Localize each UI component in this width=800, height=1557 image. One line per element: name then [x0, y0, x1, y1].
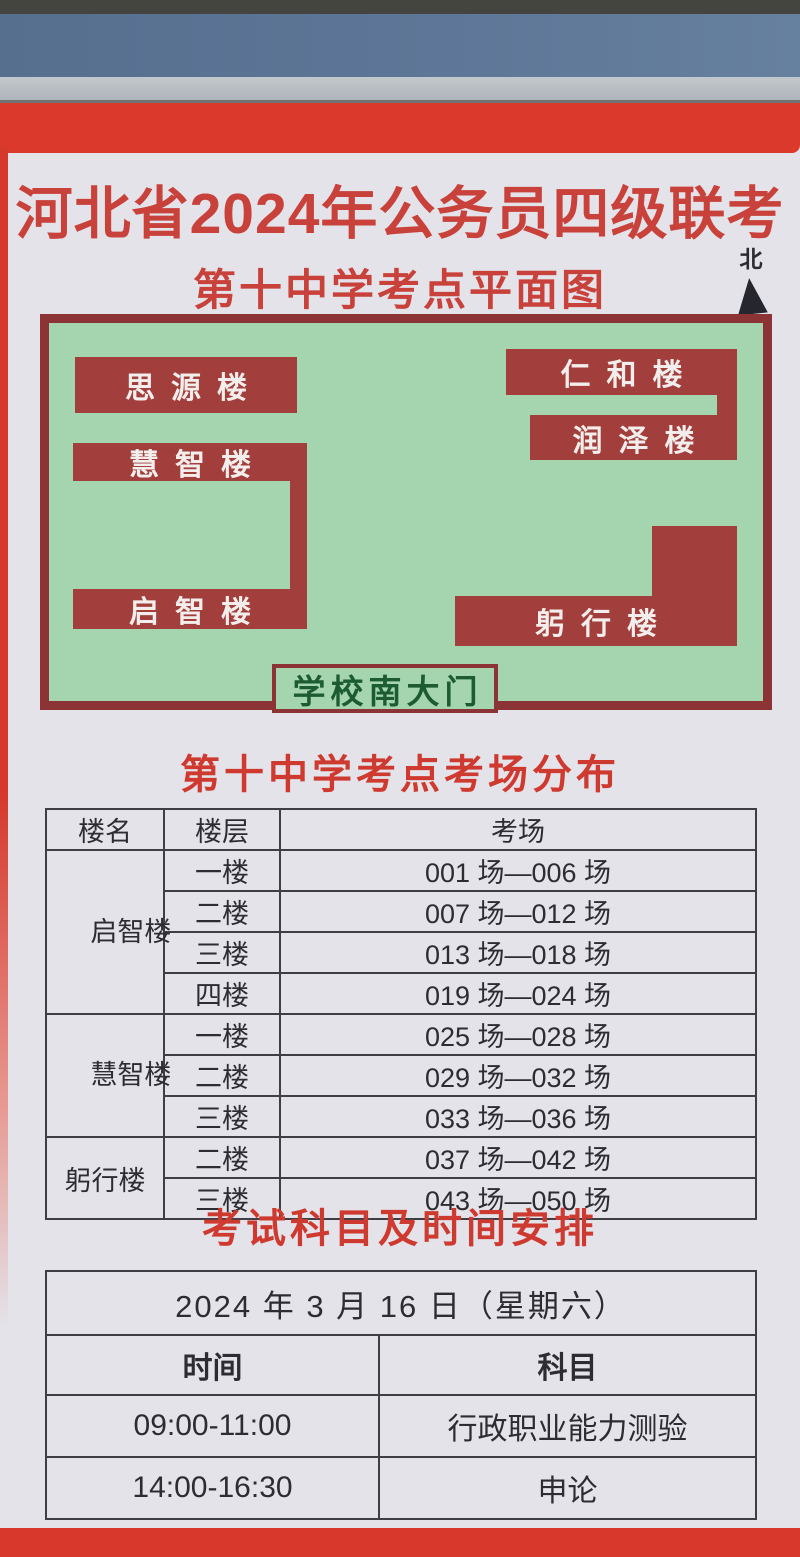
building-label: 思源楼 — [109, 363, 263, 407]
time-cell: 09:00-11:00 — [46, 1395, 379, 1457]
building-qizhi: 启智楼 — [73, 589, 307, 629]
table-row: 启智楼 一楼 001 场—006 场 — [46, 850, 756, 891]
schedule-row: 14:00-16:30 申论 — [46, 1457, 756, 1519]
table-header-row: 楼名 楼层 考场 — [46, 809, 756, 850]
north-indicator: 北 — [728, 240, 774, 314]
building-label: 躬行楼 — [519, 599, 673, 643]
room-distribution-title: 第十中学考点考场分布 — [0, 742, 800, 800]
schedule-table: 2024 年 3 月 16 日（星期六） 时间 科目 09:00-11:00 行… — [45, 1270, 757, 1520]
building-renhe-runze-connector — [717, 393, 737, 417]
time-cell: 14:00-16:30 — [46, 1457, 379, 1519]
building-qizhi-wing — [290, 479, 307, 591]
rooms-cell: 019 场—024 场 — [280, 973, 756, 1014]
building-gongxing-wing — [652, 526, 737, 598]
subject-cell: 申论 — [379, 1457, 756, 1519]
poster-photo: { "poster": { "title": "河北省2024年公务员四级联考"… — [0, 0, 800, 1557]
building-name: 躬行楼 — [65, 1166, 146, 1196]
col-header-rooms: 考场 — [280, 809, 756, 850]
window-frame-top-bar — [0, 0, 800, 14]
rooms-cell: 013 场—018 场 — [280, 932, 756, 973]
building-name: 启智楼 — [90, 909, 119, 955]
north-arrow-icon — [734, 277, 768, 316]
schedule-row: 09:00-11:00 行政职业能力测验 — [46, 1395, 756, 1457]
north-label: 北 — [728, 240, 774, 274]
building-huizhi: 慧智楼 — [73, 443, 307, 481]
rooms-cell: 007 场—012 场 — [280, 891, 756, 932]
floor-cell: 二楼 — [164, 1137, 280, 1178]
rooms-cell: 025 场—028 场 — [280, 1014, 756, 1055]
page-title: 河北省2024年公务员四级联考 — [0, 168, 800, 250]
building-label: 启智楼 — [113, 587, 267, 631]
building-label: 润泽楼 — [557, 416, 711, 460]
building-renhe: 仁和楼 — [506, 349, 737, 395]
schedule-header-row: 时间 科目 — [46, 1335, 756, 1395]
floor-cell: 二楼 — [164, 891, 280, 932]
school-south-gate: 学校南大门 — [272, 664, 498, 713]
rooms-cell: 033 场—036 场 — [280, 1096, 756, 1137]
rooms-cell: 037 场—042 场 — [280, 1137, 756, 1178]
exam-date: 2024 年 3 月 16 日（星期六） — [46, 1271, 756, 1335]
schedule-date-row: 2024 年 3 月 16 日（星期六） — [46, 1271, 756, 1335]
building-name: 慧智楼 — [90, 1052, 119, 1098]
floor-cell: 二楼 — [164, 1055, 280, 1096]
floor-cell: 四楼 — [164, 973, 280, 1014]
col-header-subject: 科目 — [379, 1335, 756, 1395]
gate-label: 学校南大门 — [288, 665, 483, 713]
building-label: 慧智楼 — [113, 440, 267, 484]
campus-map: 思源楼 仁和楼 润泽楼 慧智楼 启智楼 躬行楼 学校南大门 — [40, 314, 772, 710]
room-distribution-table: 楼名 楼层 考场 启智楼 一楼 001 场—006 场 二楼 007 场—012… — [45, 808, 757, 1220]
building-runze: 润泽楼 — [530, 415, 737, 460]
schedule-title: 考试科目及时间安排 — [0, 1196, 800, 1254]
poster-bottom-red-band — [0, 1528, 800, 1557]
col-header-building: 楼名 — [46, 809, 164, 850]
table-row: 躬行楼 二楼 037 场—042 场 — [46, 1137, 756, 1178]
col-header-floor: 楼层 — [164, 809, 280, 850]
floor-cell: 一楼 — [164, 1014, 280, 1055]
rooms-cell: 001 场—006 场 — [280, 850, 756, 891]
col-header-time: 时间 — [46, 1335, 379, 1395]
building-label: 仁和楼 — [545, 350, 699, 394]
subject-cell: 行政职业能力测验 — [379, 1395, 756, 1457]
table-row: 慧智楼 一楼 025 场—028 场 — [46, 1014, 756, 1055]
rooms-cell: 029 场—032 场 — [280, 1055, 756, 1096]
building-siyuan: 思源楼 — [75, 357, 297, 413]
floor-cell: 一楼 — [164, 850, 280, 891]
page-subtitle: 第十中学考点平面图 — [0, 256, 800, 318]
floor-cell: 三楼 — [164, 932, 280, 973]
building-group-cell: 慧智楼 — [46, 1014, 164, 1137]
sky-reflection-band — [0, 14, 800, 77]
floor-cell: 三楼 — [164, 1096, 280, 1137]
metal-rail-bar — [0, 77, 800, 103]
poster-top-red-banner — [0, 103, 800, 153]
poster-left-red-edge — [0, 148, 8, 1328]
building-group-cell: 启智楼 — [46, 850, 164, 1014]
building-gongxing: 躬行楼 — [455, 596, 737, 646]
